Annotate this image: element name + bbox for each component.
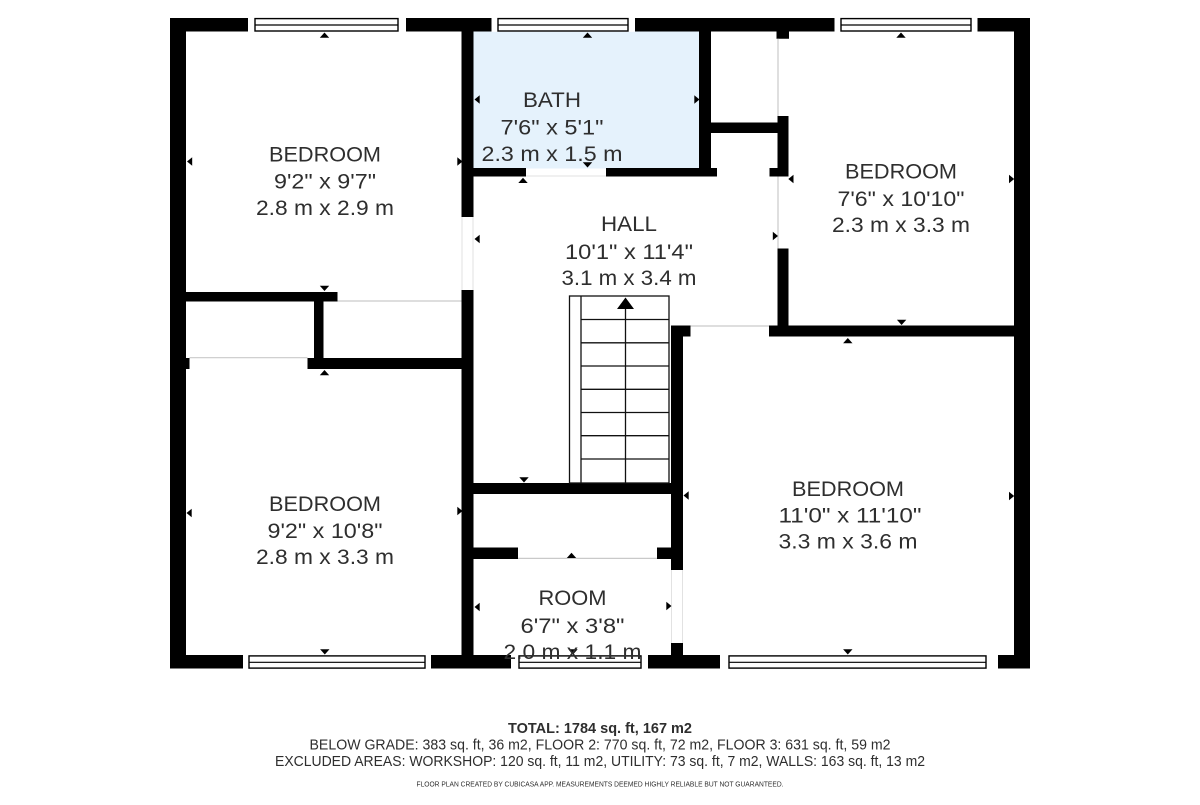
svg-text:9'2" x 9'7": 9'2" x 9'7" [274, 171, 376, 194]
svg-text:7'6" x 5'1": 7'6" x 5'1" [501, 117, 604, 140]
svg-text:TOTAL: 1784 sq. ft, 167 m2: TOTAL: 1784 sq. ft, 167 m2 [508, 720, 692, 737]
svg-text:3.1 m x 3.4 m: 3.1 m x 3.4 m [562, 267, 697, 290]
svg-text:FLOOR PLAN CREATED BY CUBICASA: FLOOR PLAN CREATED BY CUBICASA APP. MEAS… [417, 781, 784, 788]
svg-text:3.3 m x 3.6 m: 3.3 m x 3.6 m [779, 531, 918, 554]
svg-text:BATH: BATH [523, 89, 581, 112]
svg-text:BEDROOM: BEDROOM [845, 161, 957, 184]
svg-text:11'0" x 11'10": 11'0" x 11'10" [779, 505, 922, 528]
svg-text:9'2" x 10'8": 9'2" x 10'8" [268, 520, 383, 543]
svg-text:HALL: HALL [601, 213, 657, 236]
svg-text:7'6" x 10'10": 7'6" x 10'10" [838, 188, 965, 211]
svg-text:10'1" x 11'4": 10'1" x 11'4" [565, 241, 693, 264]
svg-text:2.3 m x 3.3 m: 2.3 m x 3.3 m [832, 214, 970, 237]
svg-text:2.0 m x 1.1 m: 2.0 m x 1.1 m [504, 641, 642, 664]
svg-text:2.3 m x 1.5 m: 2.3 m x 1.5 m [482, 143, 623, 166]
svg-text:BEDROOM: BEDROOM [269, 144, 381, 167]
svg-text:6'7" x 3'8": 6'7" x 3'8" [521, 615, 625, 638]
svg-text:2.8 m x 2.9 m: 2.8 m x 2.9 m [256, 197, 394, 220]
svg-text:EXCLUDED AREAS: WORKSHOP: 120: EXCLUDED AREAS: WORKSHOP: 120 sq. ft, 11… [275, 754, 925, 770]
svg-text:2.8 m x 3.3 m: 2.8 m x 3.3 m [256, 546, 394, 569]
svg-text:BEDROOM: BEDROOM [269, 493, 381, 516]
svg-text:BELOW GRADE: 383 sq. ft, 36 m2: BELOW GRADE: 383 sq. ft, 36 m2, FLOOR 2:… [310, 738, 891, 754]
svg-text:ROOM: ROOM [539, 587, 607, 610]
svg-text:BEDROOM: BEDROOM [792, 478, 904, 501]
